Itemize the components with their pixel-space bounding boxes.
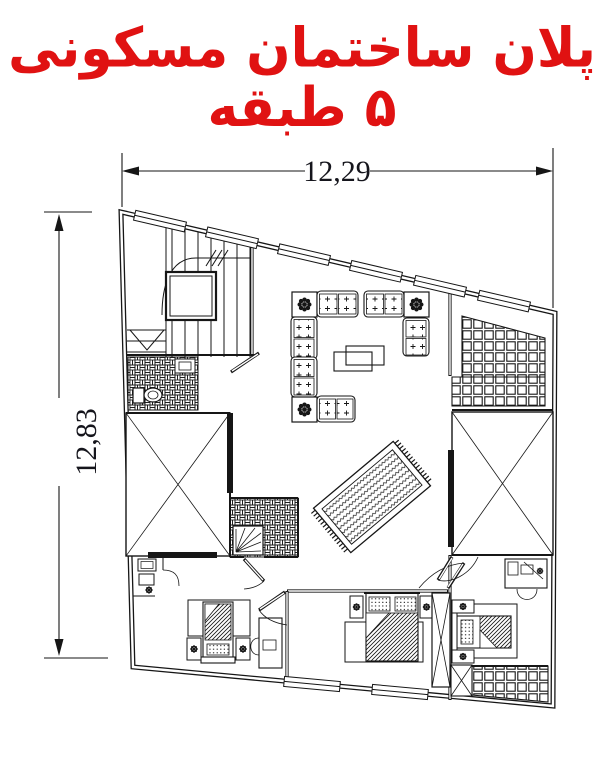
lamp-icon xyxy=(459,653,466,660)
sink-icon xyxy=(175,359,195,373)
lamp-icon xyxy=(190,645,198,653)
dim-arrow-up xyxy=(55,214,64,231)
light-well-right xyxy=(448,410,553,555)
single-bed xyxy=(452,613,511,651)
double-bed xyxy=(364,593,420,661)
lamp-icon xyxy=(353,603,361,611)
dim-width-label: 12,29 xyxy=(303,155,371,188)
single-bed xyxy=(201,602,235,663)
pillow xyxy=(369,597,390,611)
lamp-icon xyxy=(423,603,431,611)
pillow xyxy=(461,620,473,644)
elevator xyxy=(166,272,216,320)
lamp-icon xyxy=(537,568,544,575)
closet xyxy=(432,593,450,687)
plant-icon xyxy=(297,297,311,311)
lamp-icon xyxy=(239,645,247,653)
plant-icon xyxy=(297,402,311,416)
floor-plan-page: پلان ساختمان مسکونی ۵ طبقه xyxy=(0,0,604,762)
pillow xyxy=(207,644,229,655)
closet xyxy=(451,665,472,696)
light-well-left xyxy=(126,413,233,558)
dim-height-label: 12,83 xyxy=(70,408,103,476)
floor-plan-canvas: 12,29 12,83 xyxy=(0,0,604,762)
lamp-icon xyxy=(145,586,152,593)
dim-arrow-right xyxy=(536,167,553,176)
plant-icon xyxy=(409,297,423,311)
pillow xyxy=(395,597,416,611)
lamp-icon xyxy=(459,603,466,610)
dim-arrow-left xyxy=(122,167,139,176)
headboard xyxy=(452,613,457,651)
dimension-left: 12,83 xyxy=(44,212,108,658)
headboard xyxy=(201,657,235,663)
corner-shower xyxy=(233,526,263,555)
dim-arrow-down xyxy=(55,639,64,656)
toilet-icon xyxy=(133,388,162,403)
